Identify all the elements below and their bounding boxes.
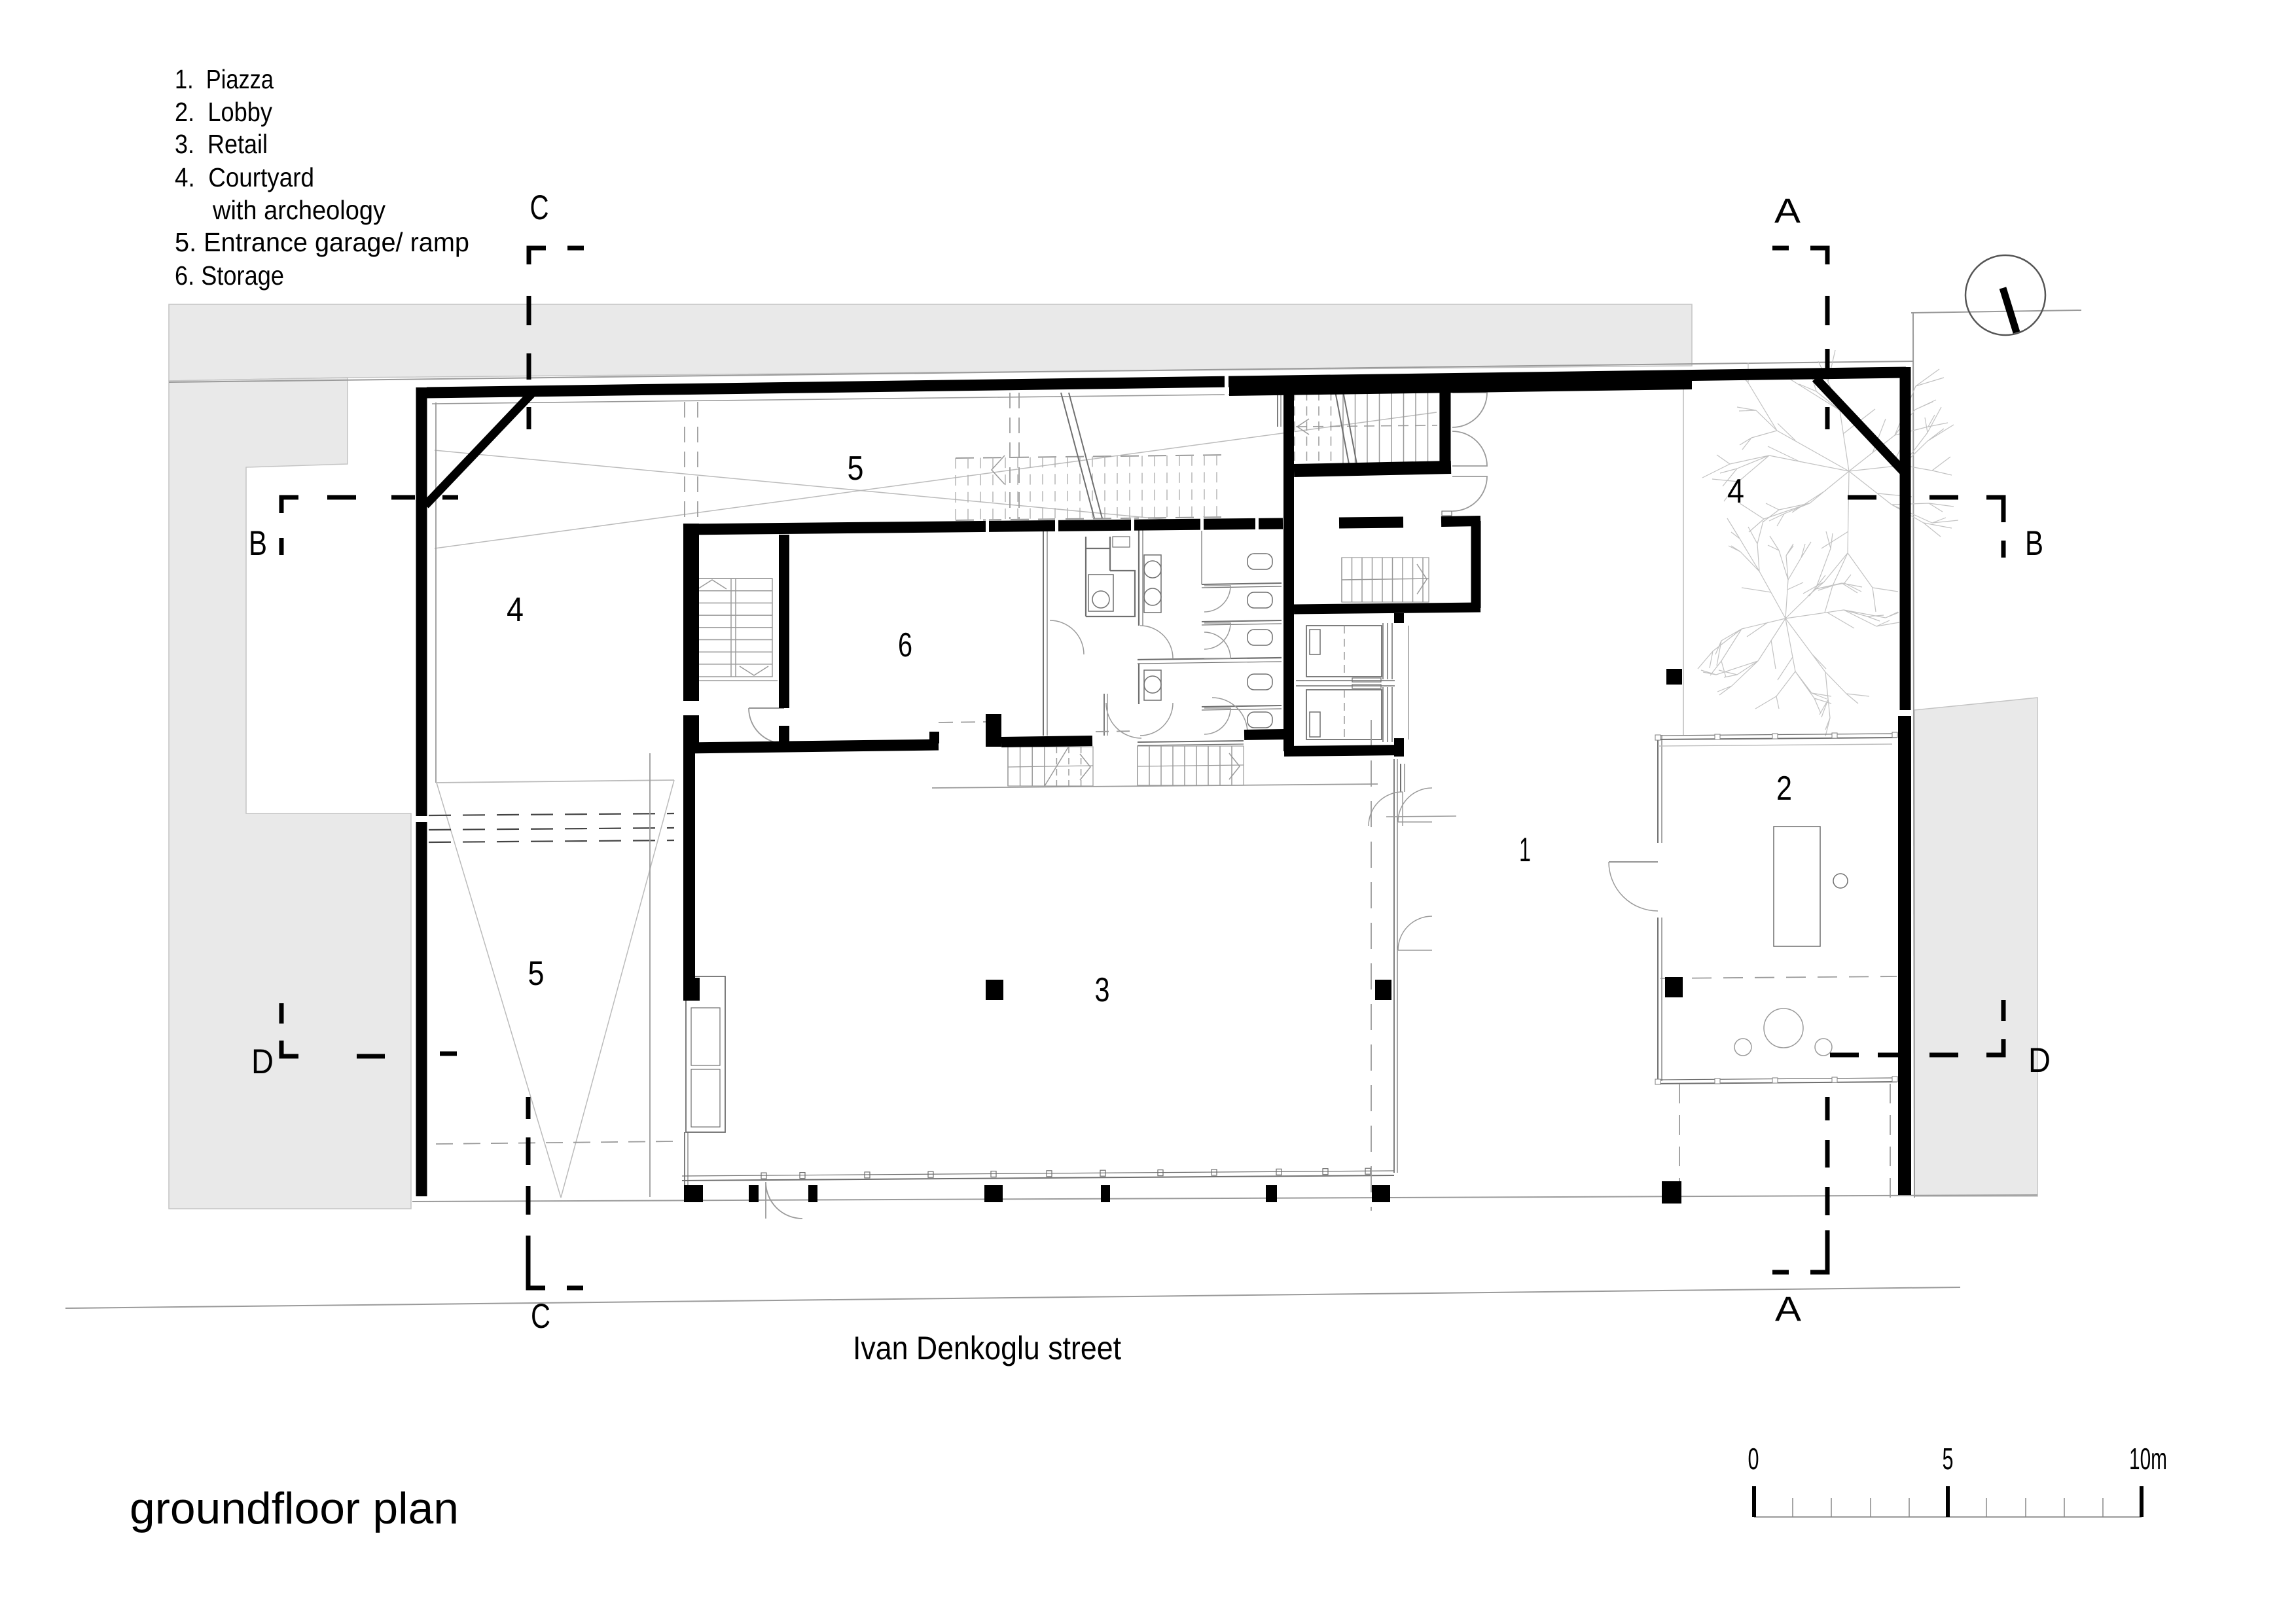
svg-text:5: 5	[528, 955, 545, 993]
svg-text:D: D	[251, 1043, 274, 1081]
svg-text:B: B	[2025, 524, 2043, 563]
svg-text:5. Entrance garage/ ramp: 5. Entrance garage/ ramp	[175, 227, 469, 257]
svg-text:Ivan Denkoglu street: Ivan Denkoglu street	[853, 1330, 1121, 1366]
svg-text:A: A	[1775, 1290, 1802, 1329]
svg-text:6. Storage: 6. Storage	[175, 260, 284, 291]
svg-text:2: 2	[1776, 770, 1792, 808]
svg-text:C: C	[531, 1297, 550, 1336]
svg-text:groundfloor plan: groundfloor plan	[130, 1484, 459, 1533]
svg-text:D: D	[2028, 1041, 2051, 1080]
svg-text:2. Lobby: 2. Lobby	[175, 97, 272, 127]
svg-text:C: C	[530, 188, 549, 227]
svg-text:5: 5	[1943, 1442, 1954, 1476]
svg-text:1: 1	[1519, 831, 1531, 869]
svg-text:A: A	[1774, 192, 1801, 230]
svg-text:1. Piazza: 1. Piazza	[175, 64, 274, 94]
svg-text:B: B	[249, 524, 267, 563]
svg-text:with archeology: with archeology	[212, 195, 386, 225]
svg-text:4. Courtyard: 4. Courtyard	[175, 162, 314, 192]
svg-text:6: 6	[898, 626, 912, 664]
svg-text:3. Retail: 3. Retail	[175, 129, 268, 159]
svg-text:4: 4	[507, 591, 524, 629]
svg-text:4: 4	[1727, 473, 1744, 510]
svg-text:5: 5	[848, 450, 864, 488]
svg-text:3: 3	[1095, 971, 1110, 1009]
svg-text:0: 0	[1748, 1442, 1759, 1476]
svg-text:10m: 10m	[2129, 1442, 2167, 1476]
